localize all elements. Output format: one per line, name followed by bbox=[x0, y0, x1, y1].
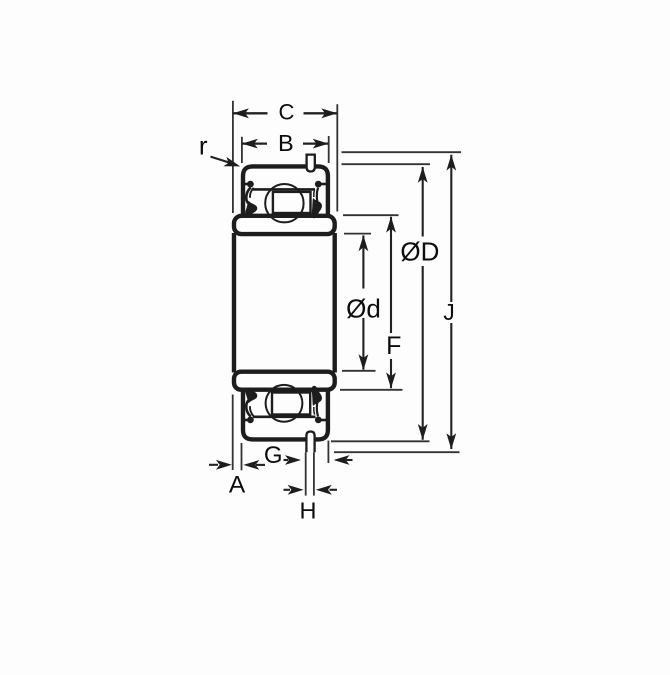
svg-text:C: C bbox=[278, 99, 294, 124]
svg-text:ØD: ØD bbox=[400, 236, 439, 266]
svg-text:J: J bbox=[443, 299, 455, 325]
svg-text:Ød: Ød bbox=[346, 294, 381, 324]
svg-text:G: G bbox=[264, 442, 283, 469]
svg-text:r: r bbox=[199, 131, 208, 161]
svg-text:H: H bbox=[300, 497, 317, 523]
svg-text:F: F bbox=[386, 332, 401, 360]
svg-text:B: B bbox=[278, 130, 294, 156]
svg-text:A: A bbox=[229, 471, 246, 498]
